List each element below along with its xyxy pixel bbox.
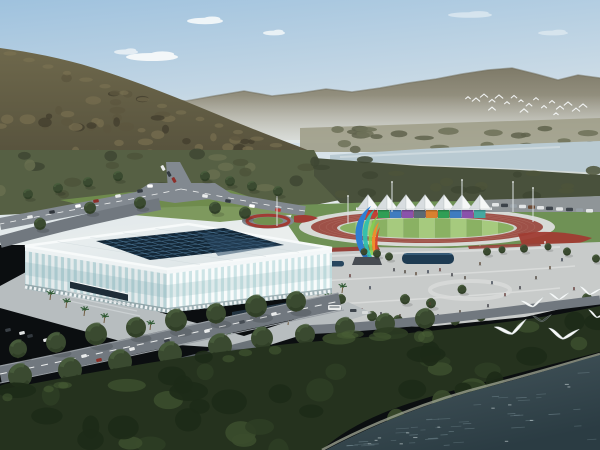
forest-canopy-clump (212, 389, 247, 414)
far-tree-clump (391, 130, 408, 137)
person (415, 272, 416, 275)
parked-car (492, 203, 499, 207)
person (399, 314, 400, 317)
container-top-shade (378, 210, 390, 211)
forest-highlight-clump (239, 349, 252, 356)
person (573, 287, 574, 290)
parked-car (362, 311, 368, 314)
sunlit-tree-clump (23, 58, 35, 62)
sunlit-tree-clump (4, 51, 17, 55)
pole-lamp (544, 241, 546, 243)
person (519, 286, 520, 289)
person (451, 273, 452, 276)
car (147, 184, 153, 187)
ripple (409, 435, 418, 436)
forest-canopy-clump (325, 364, 346, 380)
band-tree-clump (189, 149, 205, 160)
band-tree-clump (218, 163, 234, 171)
mountain-tree-clump (109, 91, 120, 96)
car (19, 331, 25, 335)
forest-canopy-clump (306, 378, 333, 401)
band-tree-clump (208, 154, 226, 161)
mountain-tree-clump (230, 133, 245, 140)
forest-canopy-clump (232, 434, 257, 447)
forest-canopy-clump (564, 312, 584, 331)
forest-canopy-clump (245, 419, 274, 435)
parked-car (586, 209, 593, 213)
sunlit-tree-clump (42, 64, 53, 68)
sunlit-tree-clump (119, 91, 128, 95)
mountain-tree-clump (210, 133, 217, 141)
mountain-tree-clump (61, 118, 73, 126)
sunlit-tree-clump (157, 104, 167, 108)
sunlit-tree-clump (63, 71, 71, 75)
mountain-tree-clump (182, 138, 191, 144)
forest-canopy-clump (31, 408, 62, 425)
far-tree-clump (415, 136, 434, 141)
sunlit-tree-clump (233, 130, 243, 134)
band-tree-clump (335, 190, 349, 198)
pole-lamp (347, 195, 349, 197)
mountain-tree-clump (110, 107, 126, 114)
sunlit-tree-clump (99, 84, 110, 88)
mountain-tree-clump (97, 119, 104, 127)
parked-car (576, 208, 583, 212)
person (491, 281, 492, 284)
architectural-rendering (0, 0, 600, 450)
band-tree-clump (255, 184, 275, 191)
far-tree-clump (350, 146, 361, 153)
palm-frond (51, 294, 52, 295)
band-tree-clump (239, 168, 251, 177)
cloud-puff (151, 51, 174, 57)
pole-lamp (461, 179, 463, 181)
band-tree-clump (24, 159, 35, 170)
band-tree-clump (430, 183, 442, 192)
forest-canopy-clump (516, 347, 547, 366)
person (535, 276, 536, 279)
container-top-shade (402, 210, 414, 211)
parked-car (519, 205, 526, 209)
band-tree-clump (18, 152, 31, 160)
person (427, 270, 428, 273)
mountain-tree-clump (114, 140, 124, 146)
person (349, 274, 350, 277)
parked-car (501, 204, 508, 208)
band-tree-clump (127, 153, 143, 160)
mountain-tree-clump (103, 124, 111, 133)
band-tree-clump (106, 162, 119, 169)
cloud-puff (469, 11, 489, 15)
roundabout-grass (253, 217, 283, 225)
forest-canopy-clump (82, 415, 99, 438)
forest-highlight-clump (2, 393, 12, 401)
mountain-tree-clump (151, 130, 164, 139)
parked-car (350, 309, 357, 312)
person (404, 270, 405, 273)
band-tree-clump (526, 171, 542, 177)
band-tree-clump (558, 188, 574, 194)
person (561, 258, 562, 261)
band-tree-clump (357, 156, 373, 163)
forest-canopy-clump (108, 379, 146, 392)
person (504, 293, 505, 296)
band-tree-clump (104, 151, 117, 162)
far-tree-clump (521, 133, 531, 137)
container-top-shade (474, 210, 486, 211)
forest-highlight-clump (44, 386, 54, 393)
band-tree-clump (290, 175, 303, 186)
band-tree-clump (64, 178, 81, 187)
band-tree-clump (513, 171, 522, 177)
far-tree-clump (371, 134, 383, 139)
palm-frond (105, 317, 106, 318)
pole-lamp (391, 181, 393, 183)
pole-lamp (512, 181, 514, 183)
far-tree-clump (538, 126, 553, 132)
sunlit-tree-clump (137, 97, 149, 101)
band-tree-clump (233, 159, 248, 166)
forest-canopy-clump (299, 404, 323, 417)
car (27, 334, 33, 338)
forest-canopy-clump (197, 364, 214, 380)
forest-canopy-clump (420, 341, 440, 366)
container-top-shade (450, 210, 462, 211)
forest-highlight-clump (53, 382, 71, 389)
cloud-puff (204, 17, 220, 21)
parked-car (546, 207, 553, 211)
parked-car (537, 206, 544, 210)
person (429, 302, 430, 305)
infield-stripe (419, 214, 435, 242)
sunlit-tree-clump (270, 143, 283, 147)
mountain-tree-clump (151, 115, 165, 121)
band-tree-clump (388, 171, 404, 176)
palm-frond (151, 324, 152, 325)
forest-canopy-clump (169, 382, 208, 401)
sunlit-tree-clump (250, 136, 264, 140)
mountain-tree-clump (138, 138, 153, 145)
mountain-tree-clump (138, 128, 146, 132)
ripple (587, 439, 596, 440)
forest-canopy-clump (175, 408, 201, 431)
forest-highlight-clump (369, 332, 392, 341)
container-top-shade (414, 210, 426, 211)
ripple (359, 441, 369, 442)
reflecting-pool (402, 253, 454, 264)
band-tree-clump (464, 186, 481, 194)
far-tree-clump (338, 140, 351, 147)
forest-canopy-clump (269, 384, 292, 403)
mountain-tree-clump (113, 117, 120, 127)
mountain-tree-clump (38, 118, 52, 128)
forest-highlight-clump (418, 331, 434, 343)
far-tree-clump (438, 128, 459, 135)
container-top-shade (426, 210, 438, 211)
forest-highlight-clump (337, 332, 359, 339)
container-top-shade (438, 210, 450, 211)
palm-frond (343, 287, 344, 288)
scene-svg (0, 0, 600, 450)
person (464, 276, 465, 279)
sunlit-tree-clump (176, 110, 187, 114)
band-tree-clump (313, 165, 330, 170)
sunlit-tree-clump (196, 117, 205, 121)
cloud-puff (125, 48, 136, 52)
forest-canopy-clump (108, 416, 139, 440)
sunlit-tree-clump (215, 123, 224, 127)
person (393, 268, 394, 271)
forest-canopy-clump (195, 351, 213, 364)
band-tree-clump (440, 178, 453, 187)
person (369, 286, 370, 289)
parked-car (556, 207, 563, 211)
mountain-tree-clump (118, 122, 134, 131)
band-tree-clump (362, 171, 378, 179)
car (5, 328, 11, 332)
parked-car (566, 208, 573, 212)
container-top-shade (462, 210, 474, 211)
person (439, 268, 440, 271)
person (479, 262, 480, 265)
forest-highlight-clump (269, 346, 282, 355)
parked-car (528, 205, 535, 209)
mountain-tree-clump (20, 114, 36, 124)
far-tree-clump (578, 130, 598, 136)
sunlit-tree-clump (79, 77, 93, 81)
mountain-tree-clump (110, 99, 121, 105)
palm-frond (85, 310, 86, 311)
far-tree-clump (355, 127, 377, 132)
person (487, 304, 488, 307)
far-tree-clump (331, 126, 343, 133)
mountain-tree-clump (85, 96, 101, 104)
mountain-tree-clump (1, 115, 13, 124)
palm-frond (67, 302, 68, 303)
cloud-puff (552, 30, 566, 33)
far-tree-clump (484, 130, 503, 137)
mountain-tree-clump (61, 111, 74, 117)
forest-canopy-clump (398, 380, 426, 399)
forest-highlight-clump (222, 355, 234, 362)
person (549, 266, 550, 269)
cloud-puff (273, 30, 283, 33)
mountain-tree-clump (86, 122, 96, 129)
pole-lamp (532, 187, 534, 189)
forest-canopy-clump (571, 337, 588, 350)
